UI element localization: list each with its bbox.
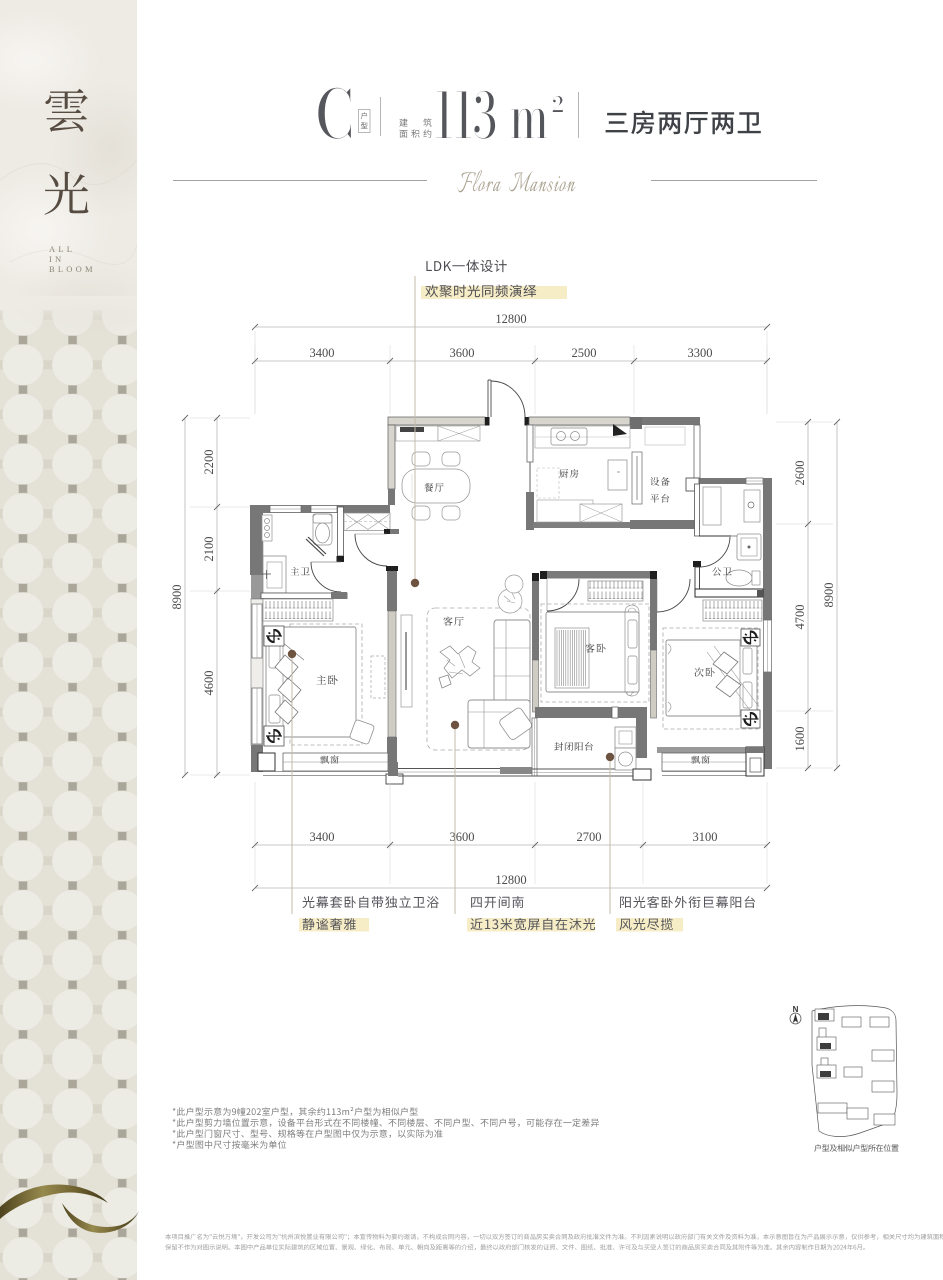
svg-text:8900: 8900 [170,585,184,610]
svg-text:ALL: ALL [49,244,75,254]
svg-text:IN: IN [49,254,64,264]
svg-text:1600: 1600 [793,727,807,752]
svg-text:4700: 4700 [793,605,807,630]
svg-text:2200: 2200 [202,450,216,475]
svg-text:2700: 2700 [577,830,602,844]
svg-text:4600: 4600 [202,671,216,696]
svg-text:12800: 12800 [495,873,526,887]
svg-text:BLOOM: BLOOM [49,264,96,274]
svg-text:8900: 8900 [822,583,836,608]
svg-text:12800: 12800 [495,312,526,326]
svg-text:3600: 3600 [450,346,475,360]
svg-text:3100: 3100 [693,830,718,844]
svg-text:3300: 3300 [688,346,713,360]
svg-text:2100: 2100 [202,537,216,562]
svg-text:2600: 2600 [793,461,807,486]
svg-text:3400: 3400 [310,830,335,844]
svg-text:3400: 3400 [310,346,335,360]
svg-text:2500: 2500 [572,346,597,360]
svg-text:3600: 3600 [450,830,475,844]
